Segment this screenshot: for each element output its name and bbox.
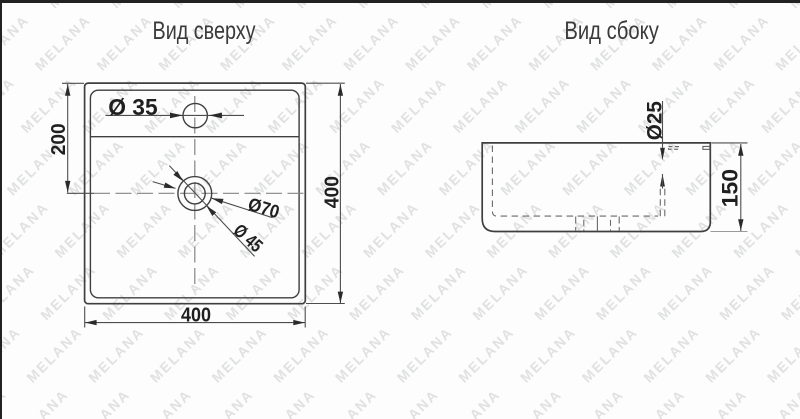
- svg-text:400: 400: [322, 176, 344, 208]
- svg-text:400: 400: [181, 304, 211, 326]
- svg-text:150: 150: [717, 169, 742, 208]
- svg-text:200: 200: [48, 123, 70, 155]
- svg-text:Ø 35: Ø 35: [108, 94, 158, 120]
- svg-text:Ø 45: Ø 45: [230, 219, 267, 256]
- svg-text:Вид сверху: Вид сверху: [153, 17, 256, 45]
- svg-text:Вид сбоку: Вид сбоку: [564, 17, 659, 45]
- svg-text:Ø70: Ø70: [246, 193, 282, 222]
- svg-text:Ø25: Ø25: [644, 101, 667, 140]
